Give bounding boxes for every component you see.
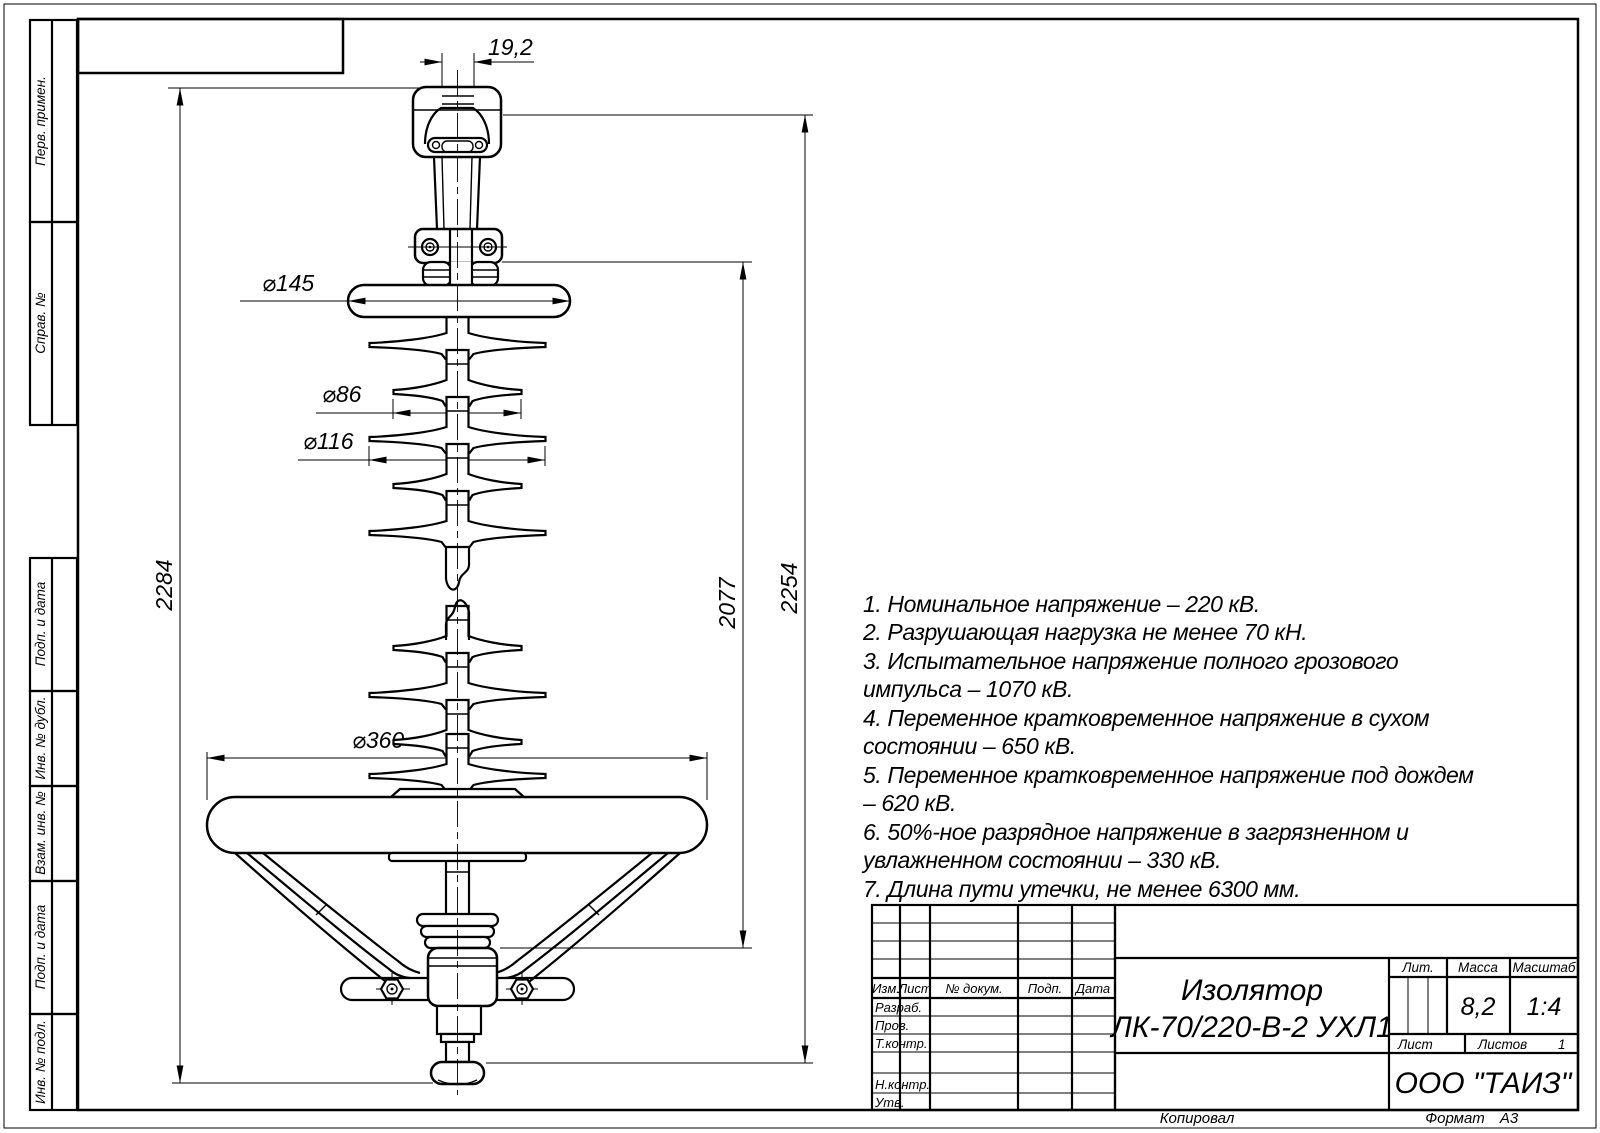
- top-left-reference-box: [78, 19, 343, 73]
- note-line: 6. 50%-ное разрядное напряжение в загряз…: [863, 819, 1409, 845]
- col-header-data: Дата: [1074, 981, 1110, 996]
- note-line: 2. Разрушающая нагрузка не менее 70 кН.: [862, 619, 1307, 645]
- dim-insulation-height: 2077: [714, 576, 740, 629]
- format-label: Формат: [1425, 1110, 1485, 1127]
- col-header-podp: Подп.: [1028, 981, 1063, 996]
- strip-label-inv-dubl: Инв. № дубл.: [33, 696, 48, 779]
- note-line: 1. Номинальное напряжение – 220 кВ.: [863, 591, 1260, 617]
- format-value: А3: [1499, 1110, 1519, 1127]
- lit-label: Лит.: [1401, 960, 1434, 975]
- note-line: 5. Переменное кратковременное напряжение…: [863, 762, 1474, 788]
- row-prov: Пров.: [875, 1018, 909, 1033]
- drawing-frame: [78, 19, 1578, 1110]
- row-utv: Утв.: [874, 1095, 905, 1110]
- strip-label-vzam-inv: Взам. инв. №: [33, 791, 48, 875]
- bottom-end-fitting: [376, 861, 538, 1085]
- left-margin-strip: Перв. примен. Справ. № Подп. и дата Инв.…: [30, 20, 77, 1110]
- row-tkontr: Т.контр.: [875, 1036, 927, 1051]
- dim-structural-height: 2254: [776, 562, 802, 614]
- note-line: состоянии – 650 кВ.: [863, 733, 1076, 759]
- company-name: ООО "ТАИЗ": [1395, 1067, 1573, 1100]
- insulator-drawing: ⌀145: [207, 70, 707, 1095]
- strip-label-inv-podl: Инв. № подл.: [33, 1020, 48, 1104]
- strip-label-podp-data-1: Подп. и дата: [33, 581, 48, 666]
- strip-label-podp-data-2: Подп. и дата: [33, 904, 48, 989]
- dim-slot-width: 19,2: [488, 34, 533, 60]
- title-block: Изм. Лист № докум. Подп. Дата Разраб. Пр…: [872, 905, 1578, 1110]
- dim-large-shed: ⌀116: [303, 428, 354, 454]
- technical-notes: 1. Номинальное напряжение – 220 кВ. 2. Р…: [861, 591, 1474, 902]
- product-title-line2: ЛК-70/220-В-2 УХЛ1: [1109, 1011, 1392, 1044]
- note-line: 4. Переменное кратковременное напряжение…: [863, 705, 1430, 731]
- strip-label-perv-primen: Перв. примен.: [33, 76, 48, 166]
- sheet-label: Лист: [1397, 1037, 1433, 1052]
- mass-label: Масса: [1458, 960, 1498, 975]
- row-razrab: Разраб.: [875, 1000, 922, 1015]
- col-header-izm: Изм.: [872, 981, 900, 996]
- scale-value: 1:4: [1527, 993, 1562, 1021]
- col-header-list: Лист: [897, 981, 932, 996]
- note-line: 7. Длина пути утечки, не менее 6300 мм.: [863, 876, 1300, 902]
- strip-label-sprav-no: Справ. №: [33, 292, 48, 354]
- note-line: – 620 кВ.: [862, 790, 956, 816]
- gost-drawing-svg: Перв. примен. Справ. № Подп. и дата Инв.…: [0, 0, 1600, 1133]
- copied-label: Копировал: [1160, 1110, 1235, 1127]
- mass-value: 8,2: [1461, 993, 1496, 1021]
- dim-small-shed: ⌀86: [322, 381, 362, 407]
- note-line: увлажненном состоянии – 330 кВ.: [861, 847, 1221, 873]
- col-header-doc: № докум.: [945, 981, 1002, 996]
- drawing-sheet: Перв. примен. Справ. № Подп. и дата Инв.…: [0, 0, 1600, 1133]
- dim-top-ring: ⌀145: [262, 270, 314, 296]
- note-line: 3. Испытательное напряжение полного гроз…: [863, 648, 1399, 674]
- row-nkontr: Н.контр.: [875, 1077, 930, 1092]
- sheets-label: Листов: [1477, 1037, 1527, 1052]
- footer-labels: Копировал Формат А3: [1160, 1110, 1519, 1127]
- scale-label: Масштаб: [1512, 960, 1575, 975]
- dim-overall-height: 2284: [151, 559, 177, 611]
- sheets-value: 1: [1558, 1037, 1566, 1052]
- top-end-fitting: [413, 87, 501, 229]
- product-title-line1: Изолятор: [1181, 974, 1323, 1007]
- note-line: импульса – 1070 кВ.: [863, 676, 1073, 702]
